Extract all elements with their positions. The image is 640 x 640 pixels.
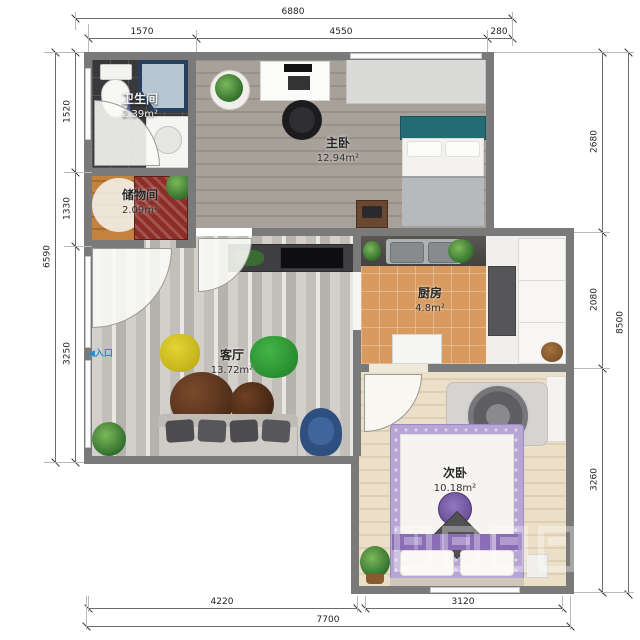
master-window-bay [346,58,486,104]
sofa-pillow [197,419,226,442]
bedroom2-plant-pot [366,574,384,584]
wall [84,240,144,248]
window [85,256,91,348]
wall [359,364,369,372]
wall [252,228,486,236]
master-bed-pillow-right [445,141,480,157]
watermark-glyph [442,526,480,572]
master-plant [215,74,243,102]
wall [188,52,196,248]
master-bed-pillow-left [407,141,442,157]
wall [92,168,188,176]
dim-label: 7700 [308,615,348,626]
wall [353,236,361,272]
office-chair-seat [289,107,315,133]
monitor [284,64,312,72]
kitchen-sink-bowl-left [390,242,424,263]
kitchen-plant-left [363,241,381,261]
window [85,68,91,140]
dim-label: 3120 [443,597,483,608]
toilet [100,64,132,80]
radio [362,206,382,218]
laptop [288,76,310,90]
bedroom2-door-opening [369,364,428,372]
dim-label: 1330 [63,189,74,229]
dim-label: 4550 [321,27,361,38]
dim-label: 6880 [273,7,313,18]
sofa-pillow [229,419,258,442]
armchair-blue-seat [308,417,334,445]
watermark [394,526,600,580]
wall [353,330,361,456]
wall [486,228,574,236]
dim-label: 8500 [616,303,627,343]
dim-label: 6590 [43,237,54,277]
fridge [392,334,442,364]
wall [486,52,494,236]
sofa-pillow [165,419,194,443]
kitchen-door-opening [353,272,361,330]
watermark-glyph [538,526,576,572]
dim-label: 2080 [590,280,601,320]
entrance-arrow-icon: ◀ [88,349,95,359]
bean-bag-yellow [160,334,200,372]
master-bed-blanket [402,176,484,226]
entrance-label: ◀入口 [88,346,113,359]
dim-label: 1520 [63,92,74,132]
kitchen-tall-unit [488,266,516,336]
window [85,360,91,448]
window [430,587,520,593]
watermark-glyph [490,526,528,572]
kitchen-plant-right [448,239,474,263]
bedroom2-shelf [546,376,566,442]
tv [280,247,344,269]
dim-label: 2680 [590,122,601,162]
window [350,53,482,59]
dim-label: 4220 [202,597,242,608]
dim-label: 1570 [122,27,162,38]
kitchen-basket [541,342,563,362]
wall [351,456,359,594]
sofa-pillow [261,419,290,443]
wall [176,240,196,248]
wall [428,364,566,372]
kitchen-cabinet-shelf-line [518,280,566,281]
entrance-text: 入口 [95,349,113,359]
dim-label: 3260 [590,460,601,500]
dim-label: 3250 [63,334,74,374]
living-plant [92,422,126,456]
watermark-glyph [394,526,432,572]
bean-bag-green [250,336,298,378]
kitchen-cabinet-shelf-line [518,322,566,323]
floor-plan-canvas: ◀入口 卫生间2.39m² 储物间2.09m² 主卧12.94m² 厨房4.8m… [0,0,640,640]
dim-label: 280 [479,27,519,38]
master-bed-headboard [400,116,486,140]
wall [84,456,359,464]
